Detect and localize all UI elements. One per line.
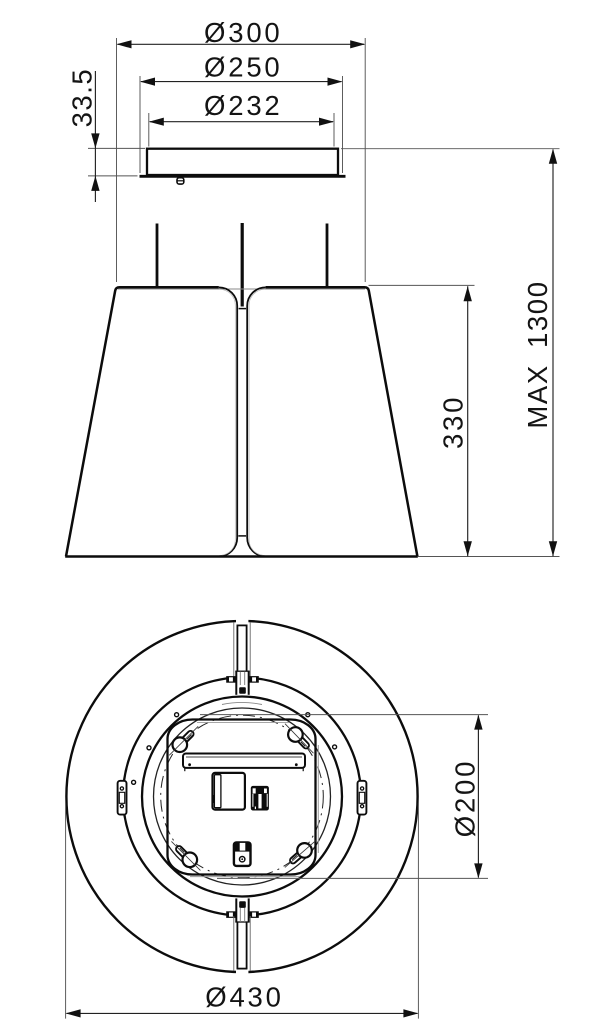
- svg-text:33.5: 33.5: [67, 68, 98, 128]
- svg-text:Ø430: Ø430: [205, 982, 283, 1013]
- svg-text:Ø232: Ø232: [204, 90, 282, 121]
- svg-text:MAX 1300: MAX 1300: [522, 280, 553, 428]
- svg-text:Ø200: Ø200: [450, 759, 481, 837]
- svg-text:Ø300: Ø300: [204, 17, 282, 48]
- svg-text:Ø250: Ø250: [204, 52, 282, 83]
- svg-text:330: 330: [438, 395, 469, 449]
